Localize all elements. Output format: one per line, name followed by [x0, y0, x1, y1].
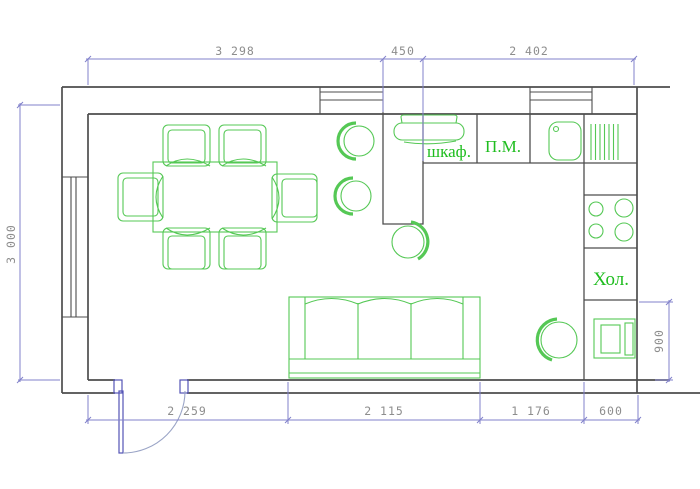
dining-chair — [163, 125, 210, 166]
lounge-chair — [537, 319, 577, 360]
dim-top-left: 3 298 — [215, 44, 255, 58]
wall-bottom — [62, 380, 700, 393]
dining-chair — [219, 125, 266, 166]
label-fridge: Хол. — [593, 269, 629, 290]
dim-left: 3 000 — [4, 224, 18, 264]
peninsula-counter — [383, 114, 423, 224]
dining-chair — [163, 228, 210, 269]
stove — [589, 199, 633, 241]
dish-drainer — [591, 124, 618, 160]
dim-bottom-3: 1 176 — [511, 404, 551, 418]
dining-table — [153, 162, 277, 232]
bar-stool — [338, 123, 374, 159]
dining-chair — [272, 174, 317, 222]
sink — [549, 122, 581, 160]
dim-top-middle: 450 — [391, 44, 415, 58]
dim-bottom-2: 2 115 — [364, 404, 404, 418]
window-top-1 — [320, 87, 383, 114]
label-dishwasher: П.М. — [485, 137, 521, 156]
window-left — [62, 177, 88, 317]
dining-chair — [219, 228, 266, 269]
wall-left — [62, 87, 88, 393]
dimension-left — [17, 102, 60, 383]
dim-right: 900 — [652, 329, 666, 353]
dim-top-right: 2 402 — [509, 44, 549, 58]
door-leaf — [119, 391, 123, 453]
floor-plan-canvas: 3 298 450 2 402 2 259 2 115 1 176 600 3 … — [0, 0, 700, 489]
bar-stool — [392, 222, 428, 259]
sofa — [289, 297, 480, 378]
tv-unit — [594, 319, 635, 358]
floor-plan: 3 298 450 2 402 2 259 2 115 1 176 600 3 … — [0, 0, 700, 489]
bar-stool — [335, 178, 371, 214]
dim-bottom-1: 2 259 — [167, 404, 207, 418]
cooker-hood — [394, 115, 464, 144]
door-swing-arc — [123, 391, 185, 453]
dim-bottom-4: 600 — [599, 404, 623, 418]
dining-chair — [118, 173, 163, 221]
label-cabinet: шкаф. — [427, 142, 471, 161]
window-top-2 — [530, 87, 592, 114]
